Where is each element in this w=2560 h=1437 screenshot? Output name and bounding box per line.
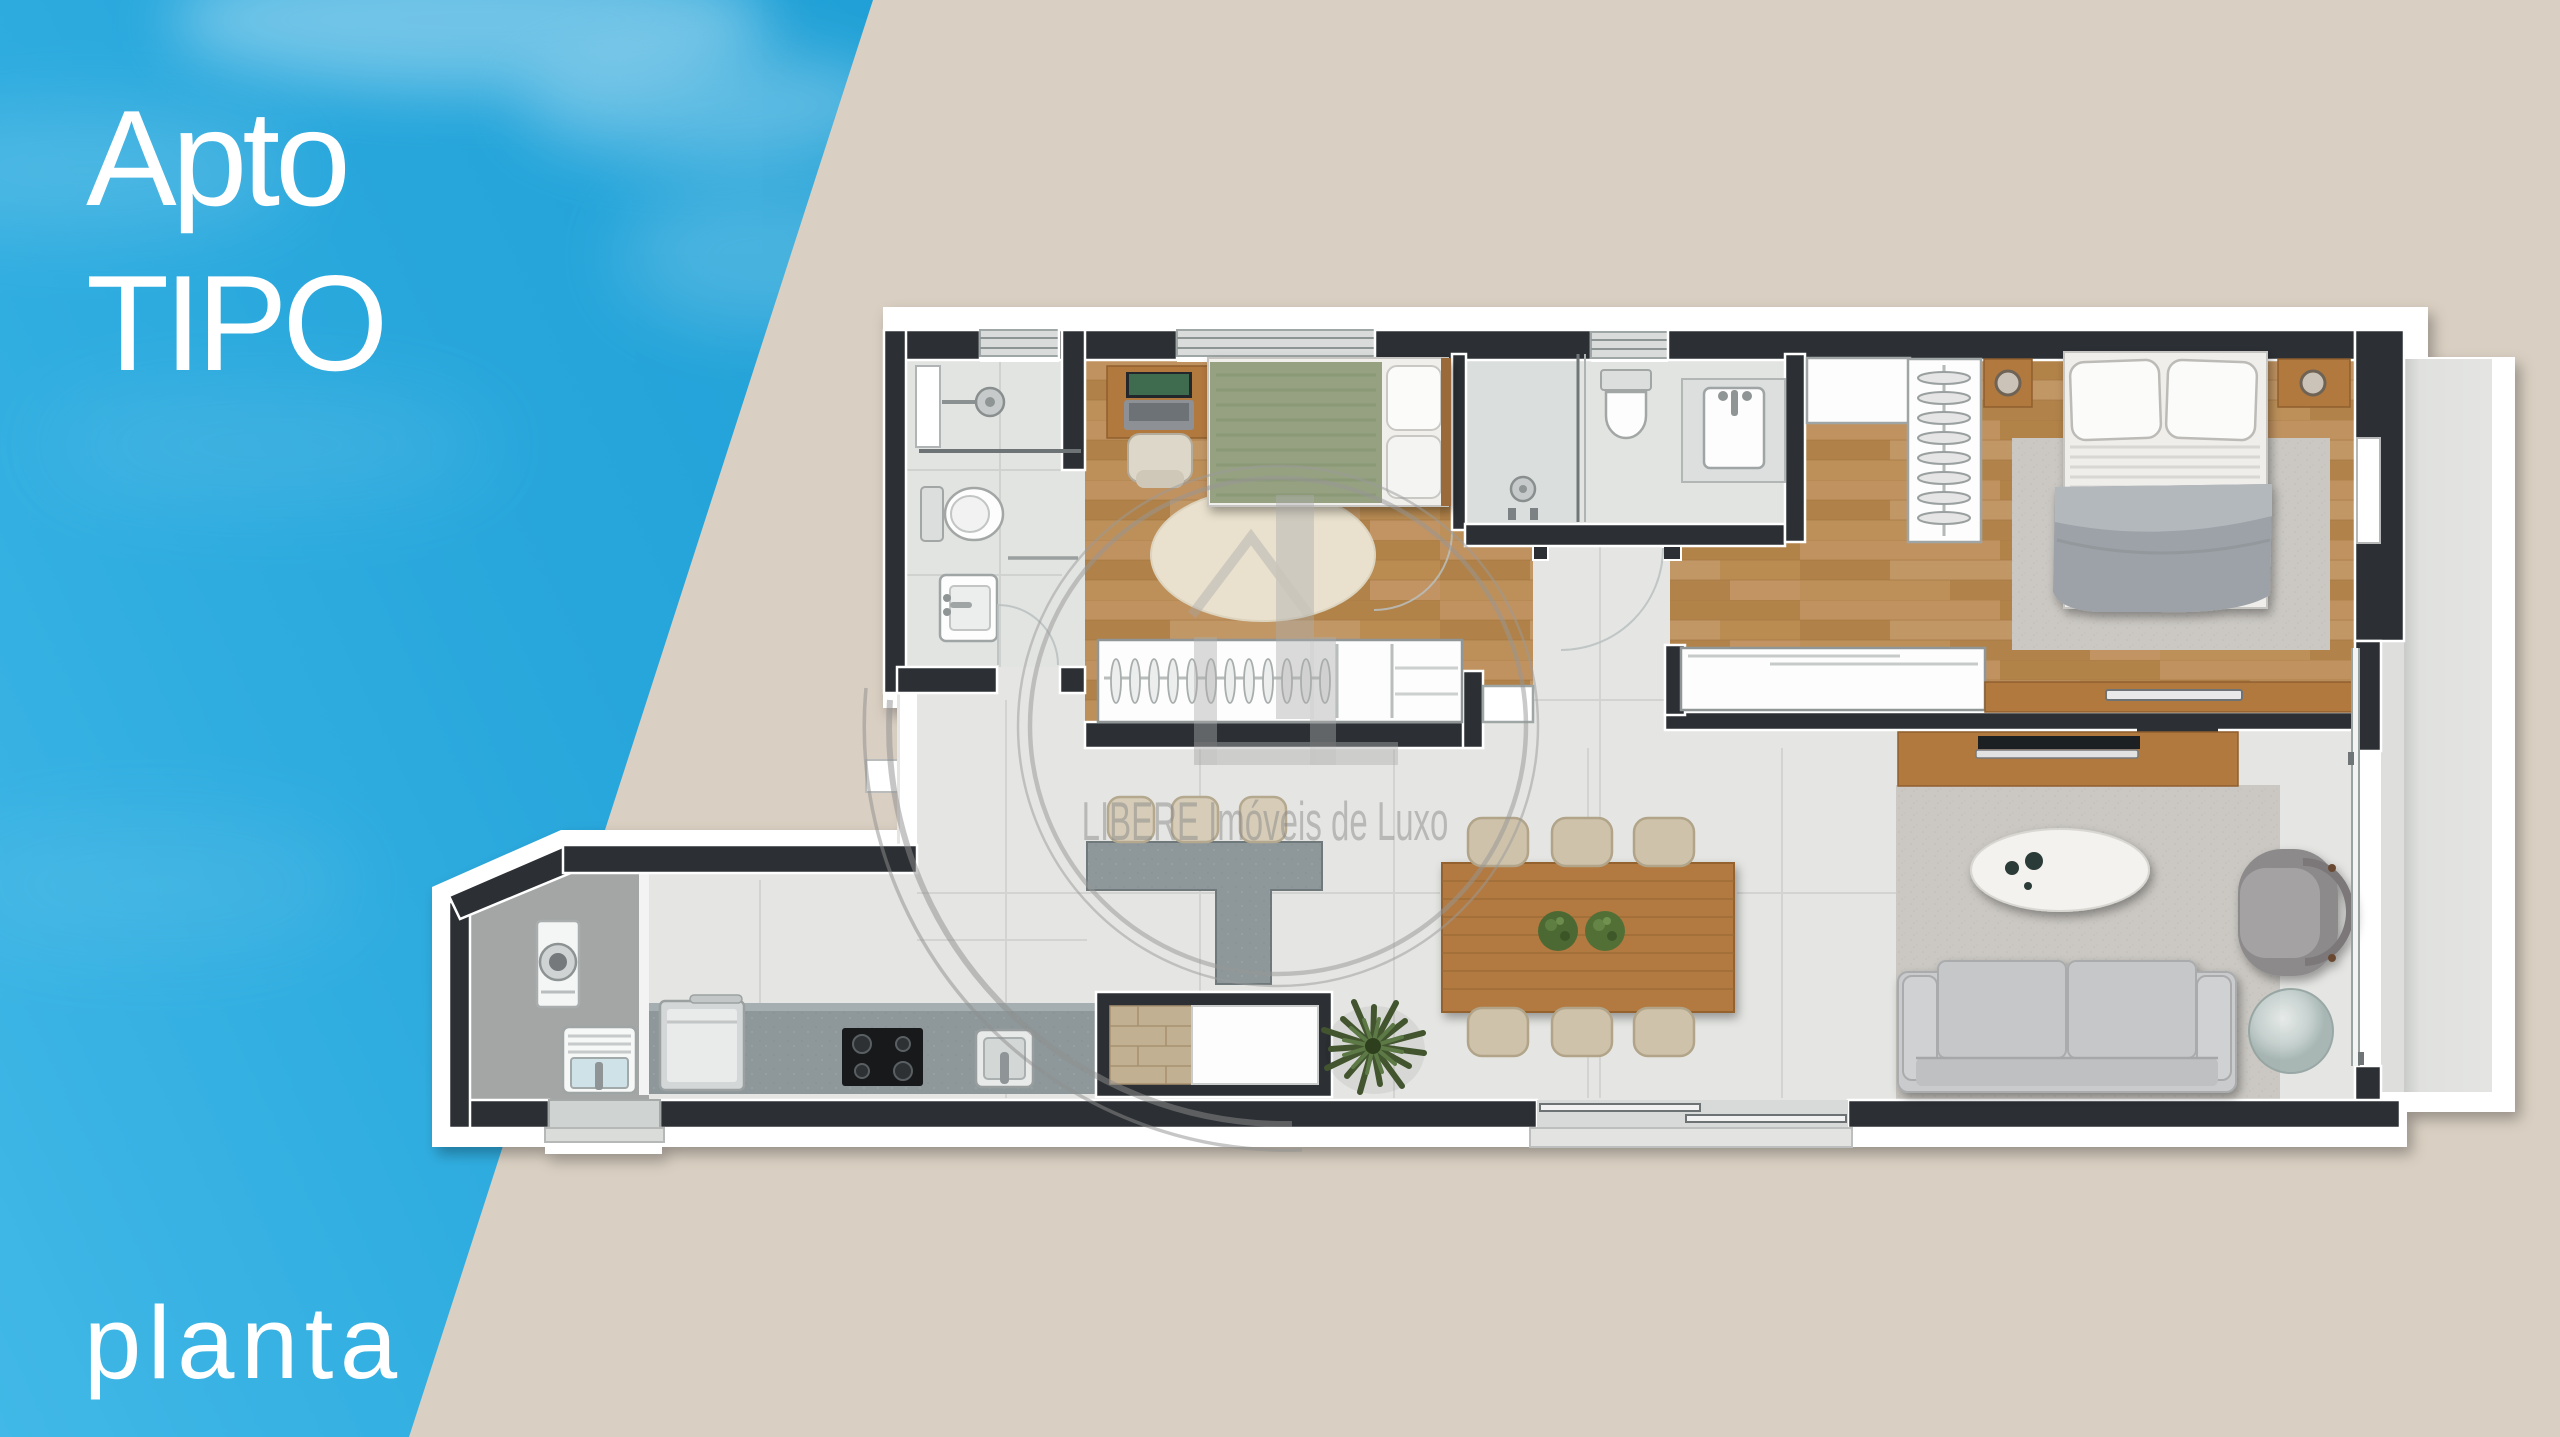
svg-text:LIBERE Imóveis de Luxo: LIBERE Imóveis de Luxo [1082,790,1449,852]
